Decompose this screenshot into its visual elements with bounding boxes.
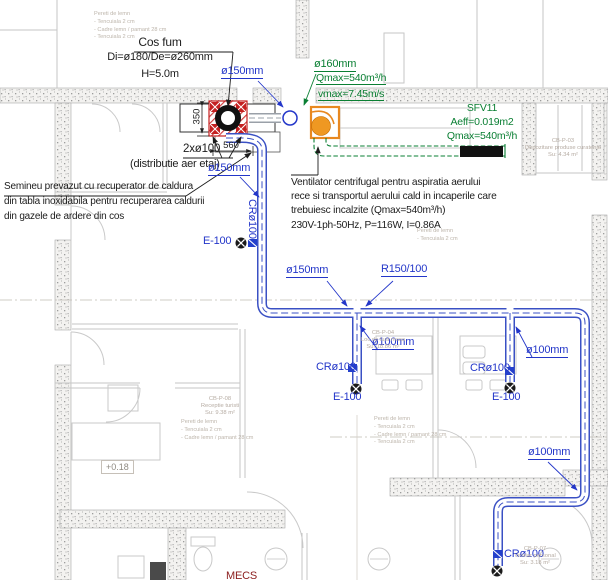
supply-flow-label: Qmax=540m³/h [316,73,386,85]
grille-model-label: SFV11 [450,103,514,114]
chimney-note-height: H=5.0m [98,69,222,81]
room-area: Su: 3.18 m² [496,560,574,567]
wall-note-line: - Cadre lemn / pamant 28 cm [94,27,166,35]
room-label-dining: CB-P-04 Loc de luat masa Su: 18.86 m² [344,330,422,351]
room-name: Loc de luat masa [344,337,422,344]
duct-label-d150-mid: ø150mm [286,265,328,278]
distribution-note-label: (distributie aer etaj) [130,159,220,171]
wall-note-line: - Cadre lemn / pamant 28 cm [181,435,253,443]
wall-note-line: - Tencuiala 2 cm [374,439,446,447]
room-label-storage: CB-P-03 Depozitare produse curatenie Su:… [518,138,608,159]
fireplace-note-line3: din gazele de ardere din cos [4,212,124,223]
centrifugal-fan-icon [311,107,339,138]
wall-note-line: - Tencuiala 2 cm [94,19,166,27]
wall-note-line: Pereti de lemn [417,228,458,236]
grille-flow-label: Qmax=540m³/h [440,131,524,142]
room-name: Depozitare produse curatenie [518,145,608,152]
damper-label-cr-mid: CRø100 [316,362,356,374]
fan-note-line1: Ventilator centrifugal pentru aspiratia … [291,176,497,190]
duct-label-d150-left: ø150mm [208,163,250,176]
register-label-e-left: E-100 [203,236,231,248]
fireplace-note-line1: Semineu prevazut cu recuperator de caldu… [4,182,193,193]
room-area: Su: 9.38 m² [182,410,258,417]
register-label-e-mid: E-100 [333,392,361,404]
wall-note-line: Pereti de lemn [181,419,253,427]
duct-label-reducer: R150/100 [381,264,427,277]
room-code: CB-P-03 [518,138,608,145]
hvac-floor-plan: Cos fum Di=ø180/De=ø260mm H=5.0m 350 560… [0,0,608,580]
wall-note-line: - Cadre lemn / pamant 28 cm [374,432,446,440]
duct-label-d100-bottom: ø100mm [528,447,570,460]
duct-chimney-connection [249,111,297,125]
wall-note-line: - Tencuiala 2 cm [94,34,166,42]
wall-composition-note: Pereti de lemn - Tencuiala 2 cm - Cadre … [374,416,446,447]
room-area: Su: 4.34 m² [518,152,608,159]
register-label-e-right: E-100 [492,392,520,404]
wall-composition-note: Pereti de lemn - Tencuiala 2 cm - Cadre … [94,11,166,42]
fan-electrical-spec: 230V-1ph-50Hz, P=116W, I=0.86A [291,219,497,233]
fan-note-line2: rece si transportul aerului cald in inca… [291,190,497,204]
fireplace-note-line2: din tabla inoxidabila pentru recuperarea… [4,197,204,208]
duct-label-d150-top: ø150mm [221,66,263,79]
room-code: CB-P-04 [344,330,422,337]
room-label-reception: CB-P-08 Receptie turisti Su: 9.38 m² [182,396,258,417]
fan-note-line3: trebuiesc incalzite (Qmax=540m³/h) [291,204,497,218]
distribution-count-label: 2xø100 [183,143,220,155]
wall-sleeve-icon [283,111,297,125]
room-area: Su: 18.86 m² [344,344,422,351]
grille-area-label: Aeff=0.019m2 [440,117,524,128]
wall-note-line: Pereti de lemn [374,416,446,424]
floor-plan-canvas [0,0,608,580]
chimney-note-diameter: Di=ø180/De=ø260mm [98,52,222,64]
wall-note-line: - Tencuiala 2 cm [181,427,253,435]
dim-350: 350 [192,103,203,131]
system-tag-mecs: MECS [226,571,257,580]
wall-note-line: - Tencuiala 2 cm [374,424,446,432]
supply-grille-icon [460,146,503,157]
wall-composition-note: Pereti de lemn - Tencuiala 2 cm - Cadre … [181,419,253,442]
wall-note-line: - Tencuiala 2 cm [417,236,458,244]
level-marker: +0.18 [101,460,134,474]
room-name: Vestiar personal [496,553,574,560]
flue-pipe-icon [218,108,238,128]
room-code: CB-P-07 [496,546,574,553]
walls-layer [0,0,608,580]
supply-velocity-label: vmax=7.45m/s [318,89,384,101]
wall-composition-note: Pereti de lemn - Tencuiala 2 cm [417,228,458,244]
damper-label-cr-left: CRø100 [245,199,257,239]
room-name: Receptie turisti [182,403,258,410]
supply-diameter-label: ø160mm [314,59,356,72]
wall-note-line: Pereti de lemn [94,11,166,19]
axis-lines [0,300,608,580]
leader-lines-green [304,74,316,105]
duct-label-d100-right: ø100mm [526,345,568,358]
room-code: CB-P-08 [182,396,258,403]
fan-note-block: Ventilator centrifugal pentru aspiratia … [291,176,497,233]
damper-label-cr-right: CRø100 [470,363,510,375]
room-label-locker: CB-P-07 Vestiar personal Su: 3.18 m² [496,546,574,567]
